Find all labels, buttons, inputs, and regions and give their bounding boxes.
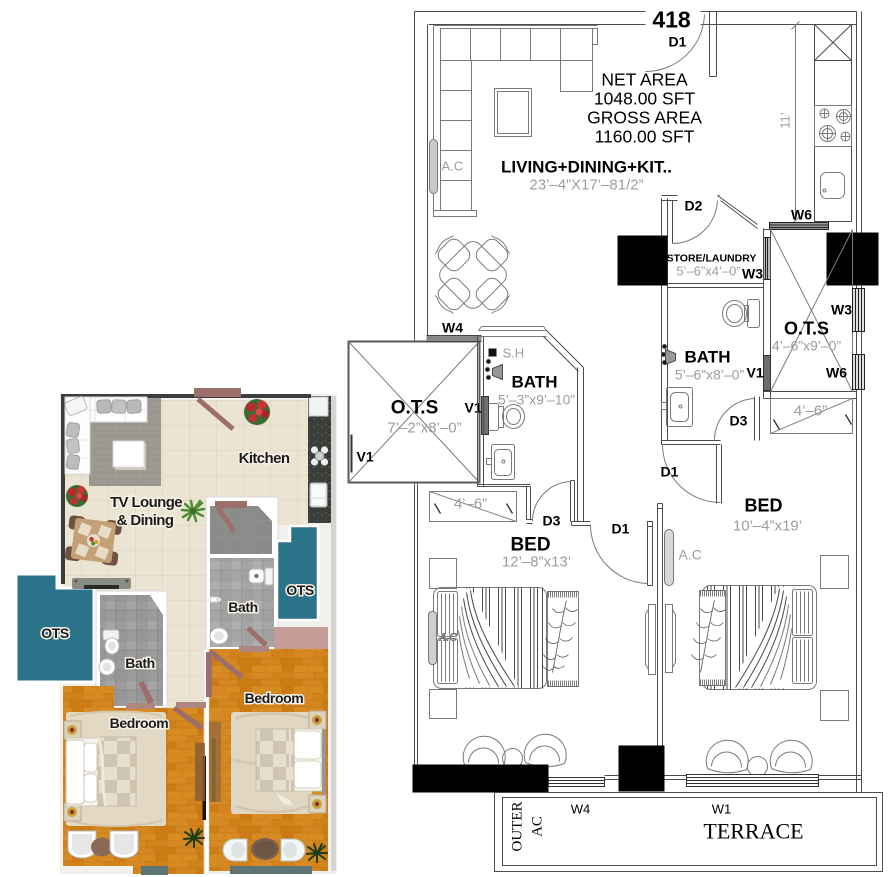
svg-text:OTS: OTS bbox=[41, 625, 69, 641]
svg-text:V1: V1 bbox=[465, 400, 482, 416]
svg-text:D3: D3 bbox=[730, 413, 748, 429]
svg-text:A.C: A.C bbox=[679, 547, 702, 563]
svg-text:LIVING+DINING+KIT..: LIVING+DINING+KIT.. bbox=[501, 158, 672, 177]
svg-text:Bath: Bath bbox=[125, 655, 155, 671]
svg-text:W6: W6 bbox=[826, 365, 847, 381]
svg-text:418: 418 bbox=[652, 7, 691, 33]
svg-text:D2: D2 bbox=[685, 198, 703, 214]
svg-text:O.T.S: O.T.S bbox=[784, 319, 829, 339]
svg-text:5’–6”x8’–0”: 5’–6”x8’–0” bbox=[675, 367, 745, 383]
svg-text:A.C: A.C bbox=[442, 159, 464, 174]
svg-text:1048.00 SFT: 1048.00 SFT bbox=[594, 89, 695, 109]
svg-text:Bedroom: Bedroom bbox=[110, 715, 169, 731]
svg-text:D1: D1 bbox=[612, 521, 630, 537]
svg-text:4’–6”x9’–0”: 4’–6”x9’–0” bbox=[772, 338, 842, 354]
svg-text:W4: W4 bbox=[571, 802, 591, 817]
svg-text:BATH: BATH bbox=[512, 373, 558, 392]
svg-text:Bedroom: Bedroom bbox=[245, 690, 304, 706]
svg-text:4’–6”: 4’–6” bbox=[454, 496, 487, 513]
svg-text:D1: D1 bbox=[669, 34, 687, 50]
svg-text:OUTER: OUTER bbox=[510, 802, 526, 852]
svg-text:& Dining: & Dining bbox=[117, 512, 174, 529]
svg-text:W6: W6 bbox=[791, 207, 812, 223]
svg-text:BED: BED bbox=[744, 496, 782, 516]
svg-text:W3: W3 bbox=[742, 266, 763, 282]
svg-text:BED: BED bbox=[510, 535, 550, 556]
svg-text:12’–8”x13’: 12’–8”x13’ bbox=[502, 554, 571, 571]
svg-text:7’–2”x8’–0”: 7’–2”x8’–0” bbox=[387, 420, 461, 437]
svg-text:V1: V1 bbox=[357, 449, 374, 465]
svg-text:TERRACE: TERRACE bbox=[703, 819, 803, 844]
svg-text:W1: W1 bbox=[712, 802, 732, 817]
svg-text:D3: D3 bbox=[543, 513, 561, 529]
svg-text:AC: AC bbox=[530, 816, 546, 837]
svg-text:5’–6”x4’–0”: 5’–6”x4’–0” bbox=[676, 264, 740, 279]
svg-text:11’: 11’ bbox=[778, 112, 793, 128]
svg-text:W3: W3 bbox=[831, 302, 852, 318]
svg-text:GROSS AREA: GROSS AREA bbox=[587, 108, 702, 128]
svg-text:Kitchen: Kitchen bbox=[239, 450, 290, 467]
svg-text:4’–6”: 4’–6” bbox=[794, 403, 827, 420]
svg-text:O.T.S: O.T.S bbox=[391, 398, 439, 419]
svg-text:A.C: A.C bbox=[439, 632, 457, 644]
svg-text:W4: W4 bbox=[442, 320, 463, 336]
svg-text:1160.00 SFT: 1160.00 SFT bbox=[595, 127, 695, 147]
svg-text:BATH: BATH bbox=[685, 348, 731, 367]
svg-text:23’–4”X17’–81/2”: 23’–4”X17’–81/2” bbox=[529, 177, 643, 194]
svg-text:OTS: OTS bbox=[286, 582, 314, 598]
svg-text:NET AREA: NET AREA bbox=[601, 70, 688, 90]
svg-text:TV Lounge: TV Lounge bbox=[110, 494, 182, 511]
svg-text:V1: V1 bbox=[747, 365, 764, 381]
svg-text:Bath: Bath bbox=[228, 599, 258, 615]
svg-text:S.H: S.H bbox=[503, 346, 525, 361]
svg-text:D1: D1 bbox=[661, 464, 679, 480]
svg-text:10’–4”x19’: 10’–4”x19’ bbox=[733, 518, 802, 535]
